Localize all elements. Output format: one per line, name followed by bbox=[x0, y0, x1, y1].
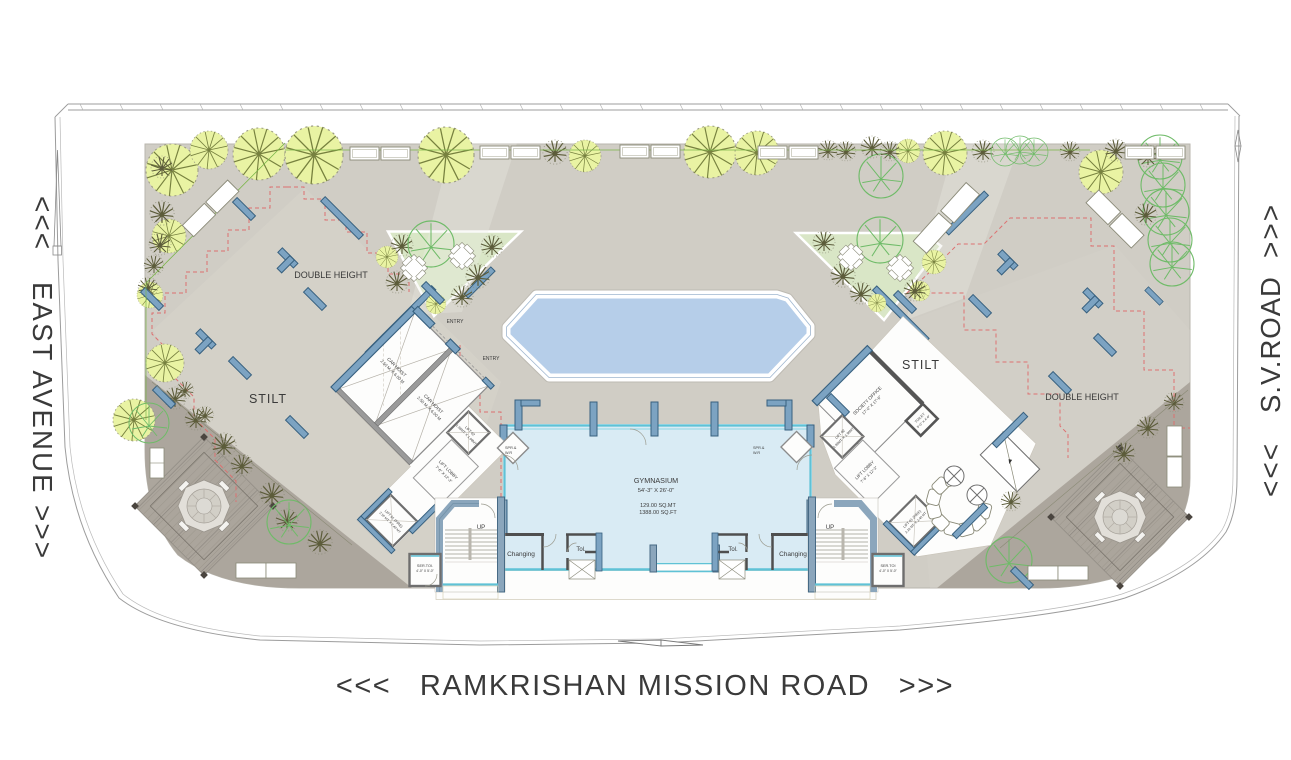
svg-text:UP: UP bbox=[826, 525, 834, 531]
svg-text:<<<: <<< bbox=[1255, 442, 1286, 497]
svg-text:<<< RAMKRISHAN MISSION ROAD: <<< RAMKRISHAN MISSION ROAD >>> bbox=[336, 670, 954, 702]
svg-text:STILT: STILT bbox=[249, 392, 287, 406]
svg-text:STILT: STILT bbox=[902, 358, 940, 372]
svg-text:129.00 SQ.MT: 129.00 SQ.MT bbox=[640, 503, 676, 509]
svg-text:Tol.: Tol. bbox=[576, 547, 586, 553]
svg-text:4'-0" X 5'-0": 4'-0" X 5'-0" bbox=[879, 569, 897, 573]
svg-text:EAST AVENUE: EAST AVENUE bbox=[27, 282, 58, 495]
svg-text:UP: UP bbox=[477, 525, 485, 531]
svg-text:DOUBLE HEIGHT: DOUBLE HEIGHT bbox=[294, 270, 368, 280]
svg-text:GYMNASIUM: GYMNASIUM bbox=[634, 476, 678, 485]
svg-text:DOUBLE HEIGHT: DOUBLE HEIGHT bbox=[1045, 392, 1119, 402]
svg-text:W.R: W.R bbox=[505, 451, 512, 455]
svg-text:Tol.: Tol. bbox=[728, 547, 738, 553]
svg-text:Changing: Changing bbox=[779, 551, 807, 558]
svg-text:Changing: Changing bbox=[507, 551, 535, 558]
svg-text:54'-3" X 26'-0": 54'-3" X 26'-0" bbox=[638, 488, 675, 494]
svg-text:ENTRY: ENTRY bbox=[483, 356, 501, 362]
svg-text:W.R: W.R bbox=[753, 451, 760, 455]
svg-text:SPR.&: SPR.& bbox=[753, 446, 765, 450]
svg-text:SER.TOI.: SER.TOI. bbox=[417, 564, 433, 568]
svg-text:S.V.ROAD: S.V.ROAD bbox=[1255, 276, 1286, 413]
svg-text:SER.TOI: SER.TOI bbox=[880, 564, 895, 568]
svg-text:1388.00 SQ.FT: 1388.00 SQ.FT bbox=[639, 510, 677, 516]
svg-text:>>>: >>> bbox=[1255, 203, 1286, 258]
svg-text:SPR.&: SPR.& bbox=[505, 446, 517, 450]
svg-text:ENTRY: ENTRY bbox=[447, 319, 465, 325]
svg-text:<<<: <<< bbox=[27, 196, 58, 251]
svg-text:4'-0" X 5'-0": 4'-0" X 5'-0" bbox=[416, 569, 434, 573]
svg-text:>>>: >>> bbox=[27, 505, 58, 560]
